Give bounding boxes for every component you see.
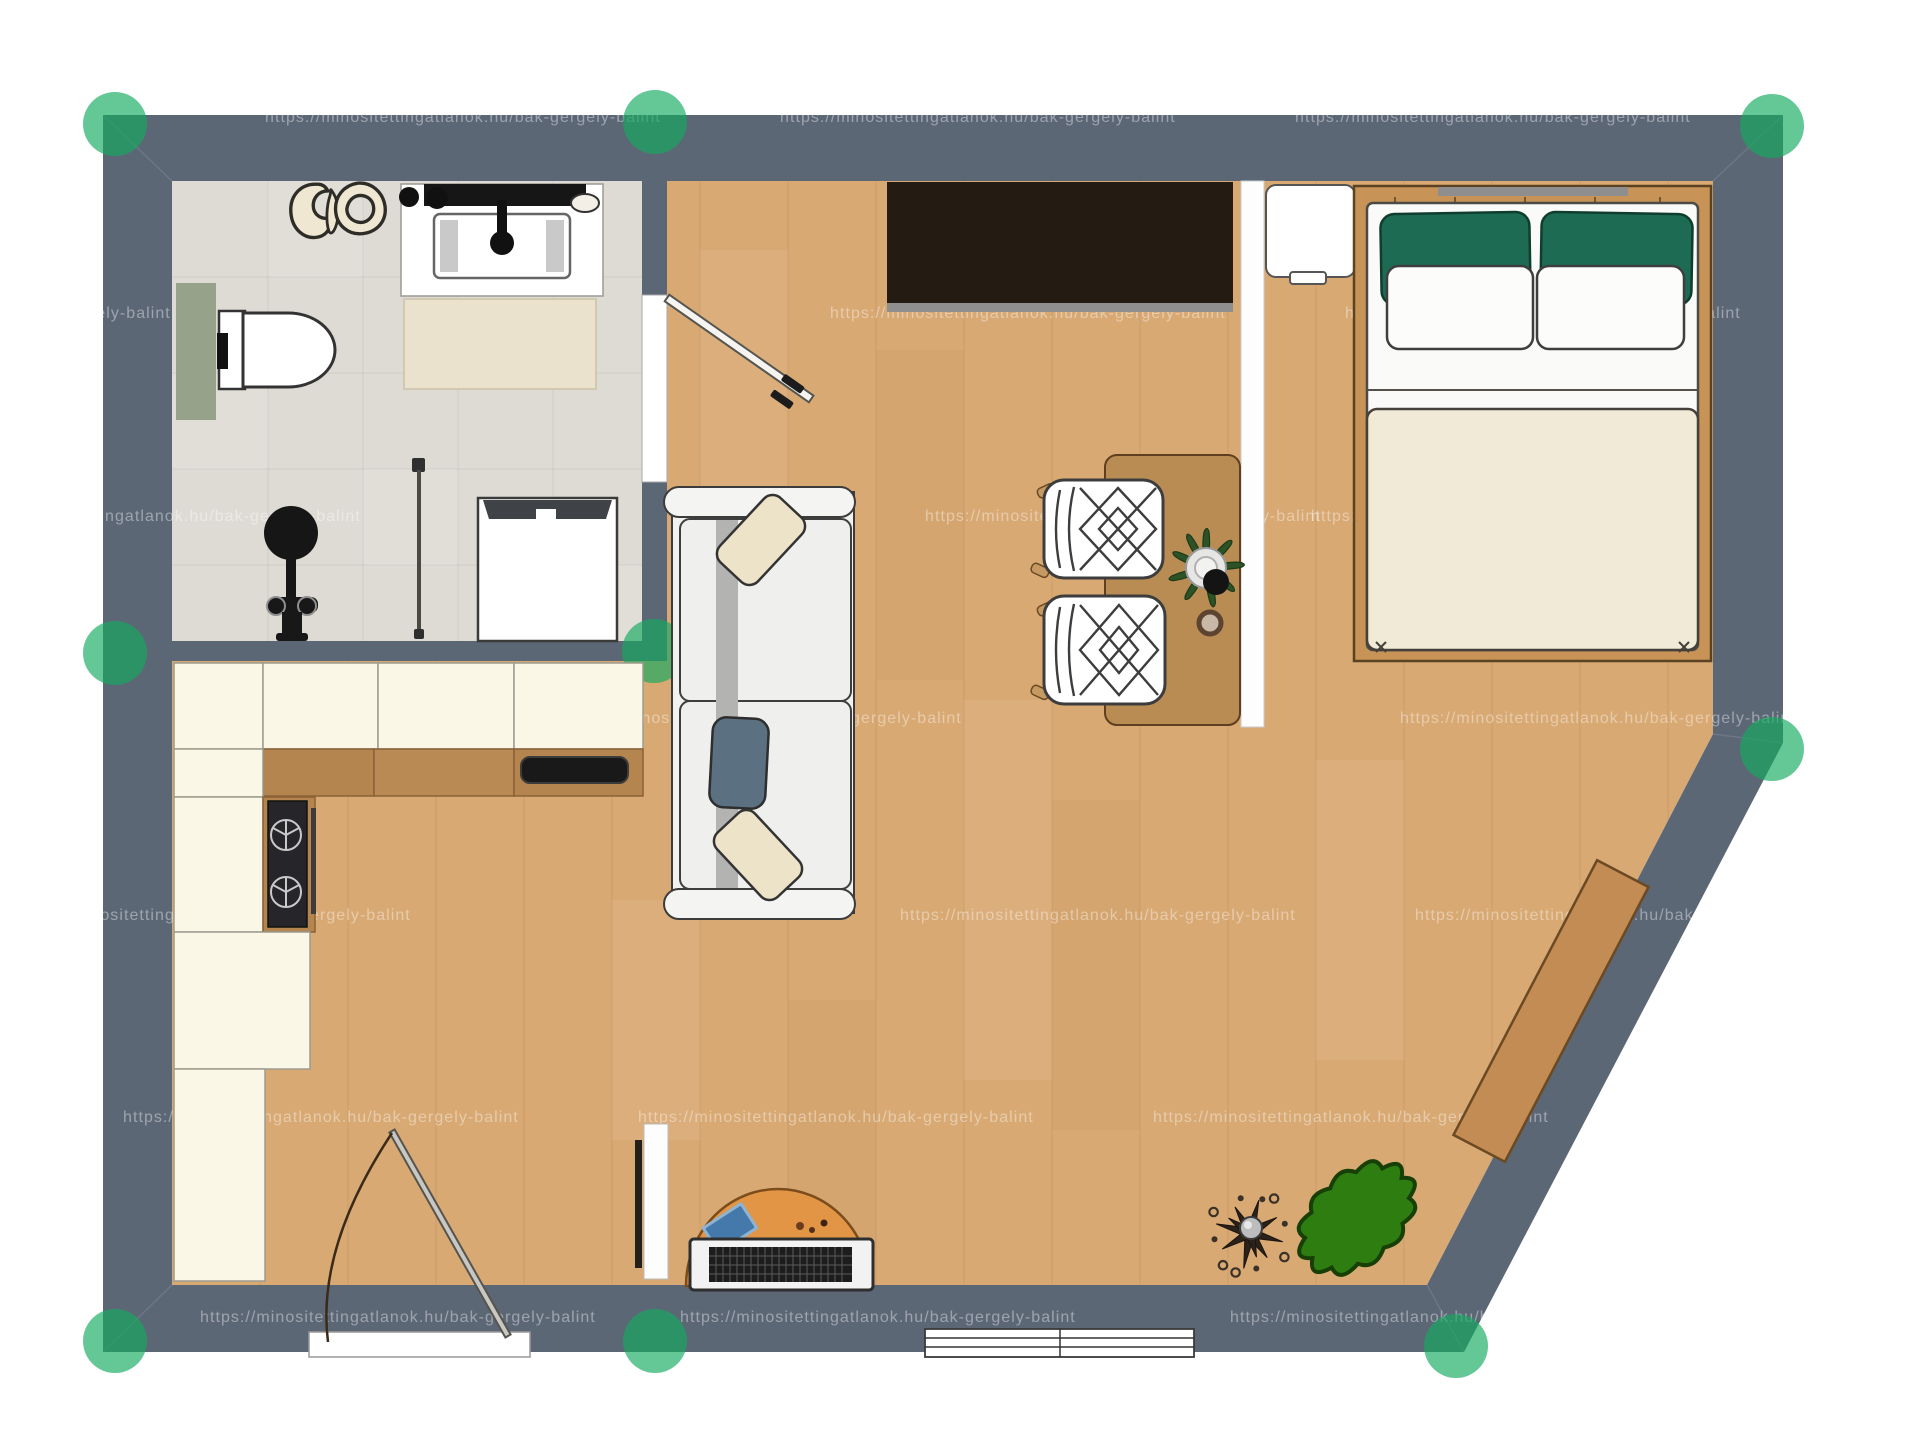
svg-text:https://minositettingatlanok.h: https://minositettingatlanok.hu/bak-gerg…: [1230, 1309, 1626, 1326]
svg-text:https://minositettingatlanok.h: https://minositettingatlanok.hu/bak-gerg…: [680, 1309, 1076, 1326]
svg-text:https://minositettingatlanok.h: https://minositettingatlanok.hu/bak-gerg…: [1295, 109, 1691, 126]
svg-text:https://minositettingatlanok.h: https://minositettingatlanok.hu/bak-gerg…: [1230, 1400, 1626, 1417]
svg-text:https://minositettingatlanok.h: https://minositettingatlanok.hu/bak-gerg…: [900, 907, 1296, 924]
svg-text:https://minositettingatlanok.h: https://minositettingatlanok.hu/bak-gerg…: [780, 109, 1176, 126]
svg-text:https://minositettingatlanok.h: https://minositettingatlanok.hu/bak-gerg…: [200, 1400, 596, 1417]
svg-text:https://minositettingatlanok.h: https://minositettingatlanok.hu/bak-gerg…: [638, 1109, 1034, 1126]
svg-text:https://minositettingatlanok.h: https://minositettingatlanok.hu/bak-gerg…: [265, 109, 661, 126]
svg-text:https://minositettingatlanok.h: https://minositettingatlanok.hu/bak-gerg…: [0, 305, 171, 322]
svg-text:https://minositettingatlanok.h: https://minositettingatlanok.hu/bak-gerg…: [200, 1309, 596, 1326]
svg-text:https://minositettingatlanok.h: https://minositettingatlanok.hu/bak-gerg…: [720, 1400, 1116, 1417]
svg-text:https://minositettingatlanok.h: https://minositettingatlanok.hu/bak-gerg…: [1400, 710, 1796, 727]
